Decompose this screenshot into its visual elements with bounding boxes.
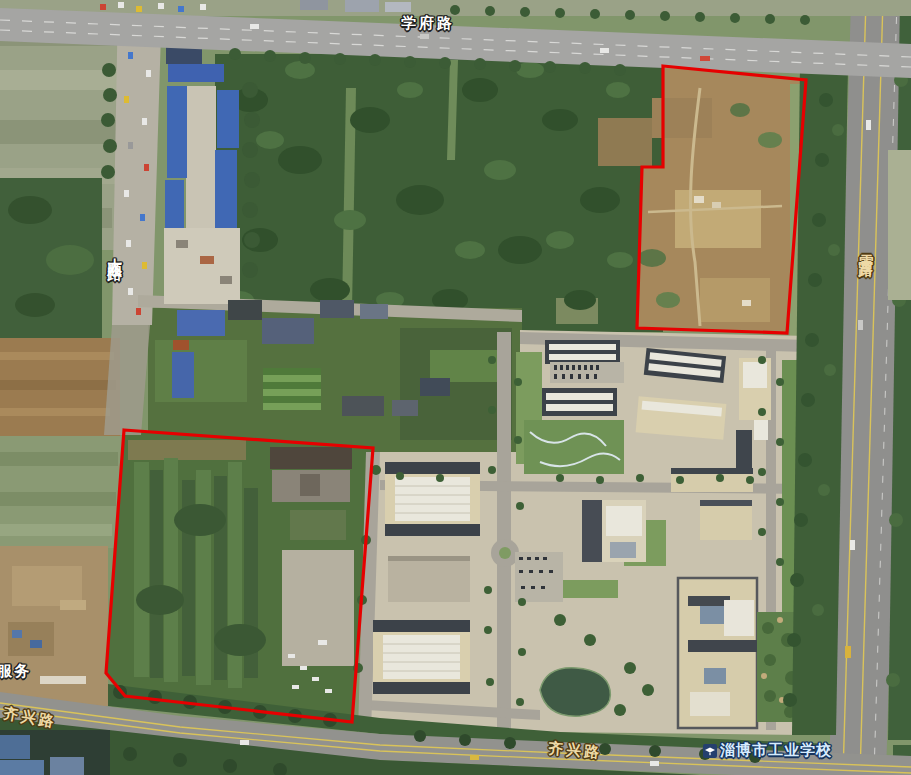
pond — [540, 668, 610, 716]
campus-main-building — [678, 578, 757, 728]
forest-block — [215, 54, 663, 332]
school-poi-text: 淄博市工业学校 — [720, 741, 832, 760]
satellite-imagery — [0, 0, 911, 775]
parcel-southwest-terrain — [106, 430, 373, 722]
poi-label-school[interactable]: 淄博市工业学校 — [703, 741, 832, 760]
satellite-map-viewport[interactable]: 学府路 大顺路 雪宫路 齐兴路 齐兴路 服务 淄博市工业学校 — [0, 0, 911, 775]
school-poi-icon — [703, 744, 717, 758]
service-area-buildings — [0, 730, 110, 775]
